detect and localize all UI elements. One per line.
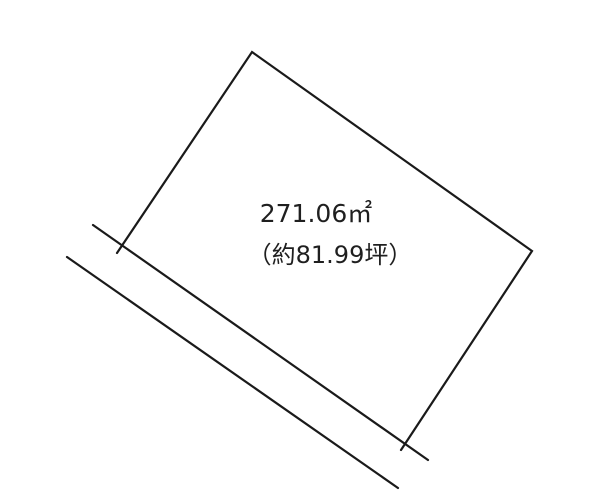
area-tsubo-label: （約81.99坪） — [226, 239, 434, 271]
area-square-meters-label: 271.06㎡ — [226, 200, 406, 228]
land-plot-diagram: 271.06㎡ （約81.99坪） — [0, 0, 611, 496]
road-boundary-line-lower — [67, 257, 398, 488]
